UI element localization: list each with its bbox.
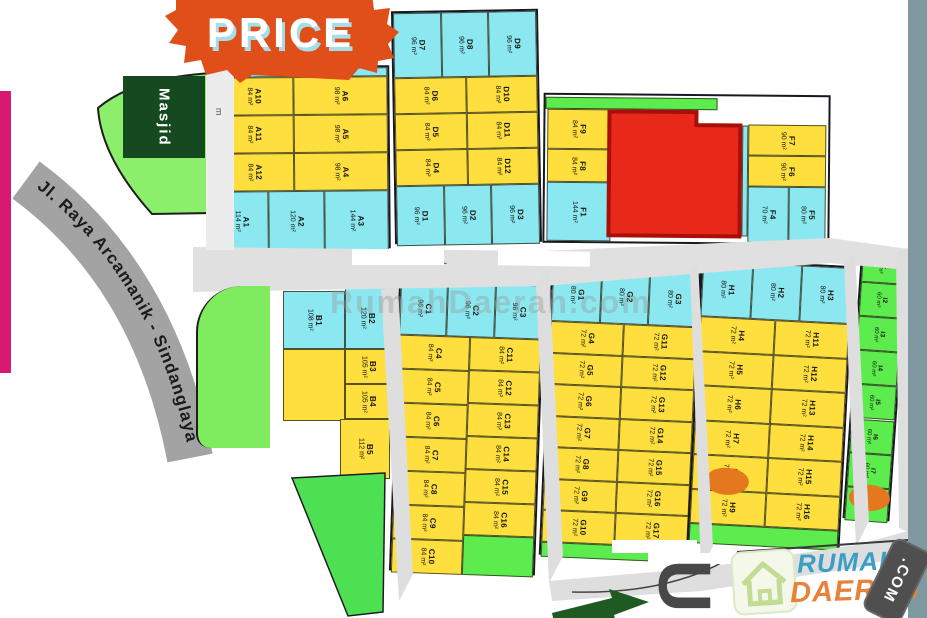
side-road <box>206 64 234 250</box>
magenta-edge-bar <box>0 91 11 373</box>
photo-edge-band <box>908 0 927 618</box>
censor-bar <box>352 249 444 265</box>
road-width-label: m <box>214 108 224 116</box>
logo-tld: .COM <box>879 556 915 606</box>
reserve-band <box>196 286 270 448</box>
main-road-shape <box>26 180 190 458</box>
censor-bar <box>498 250 590 267</box>
green-wedge <box>292 473 385 616</box>
north-label: U <box>648 540 720 618</box>
site-plan: Jl. Raya Arcamanik - Sindanglaya m Masji… <box>0 0 927 618</box>
mosque-block: Masjid <box>123 76 205 158</box>
mosque-label: Masjid <box>156 88 173 147</box>
